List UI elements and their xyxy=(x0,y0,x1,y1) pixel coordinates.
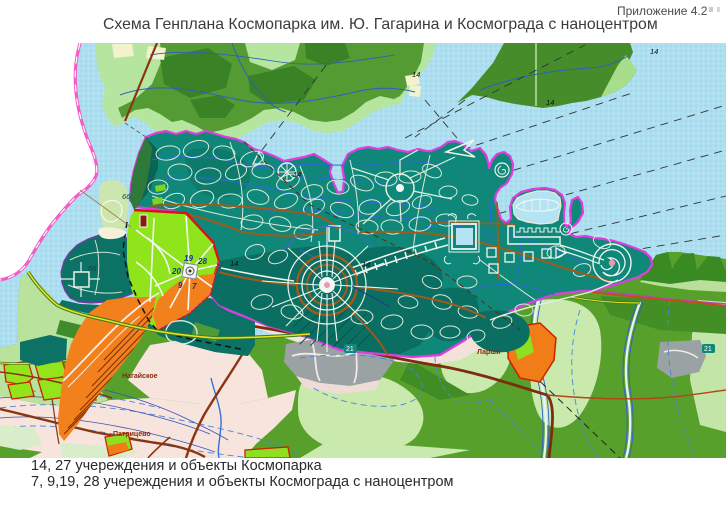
svg-text:Патрицево: Патрицево xyxy=(113,431,151,438)
svg-text:Ларши: Ларши xyxy=(477,349,500,356)
svg-text:14: 14 xyxy=(546,98,554,107)
svg-text:14: 14 xyxy=(650,47,658,56)
svg-text:9: 9 xyxy=(178,281,183,290)
svg-text:14: 14 xyxy=(412,70,420,79)
svg-text:14: 14 xyxy=(230,259,238,268)
svg-text:21: 21 xyxy=(346,346,354,353)
svg-text:28: 28 xyxy=(197,257,207,266)
svg-text:14: 14 xyxy=(362,260,370,269)
svg-text:7: 7 xyxy=(192,282,197,291)
svg-text:20: 20 xyxy=(171,267,181,276)
svg-text:66: 66 xyxy=(88,264,97,273)
svg-text:Нагайское: Нагайское xyxy=(122,372,158,380)
svg-text:21: 21 xyxy=(704,346,712,353)
svg-text:19: 19 xyxy=(184,254,193,263)
svg-text:14: 14 xyxy=(293,170,301,179)
svg-text:66: 66 xyxy=(122,192,131,201)
